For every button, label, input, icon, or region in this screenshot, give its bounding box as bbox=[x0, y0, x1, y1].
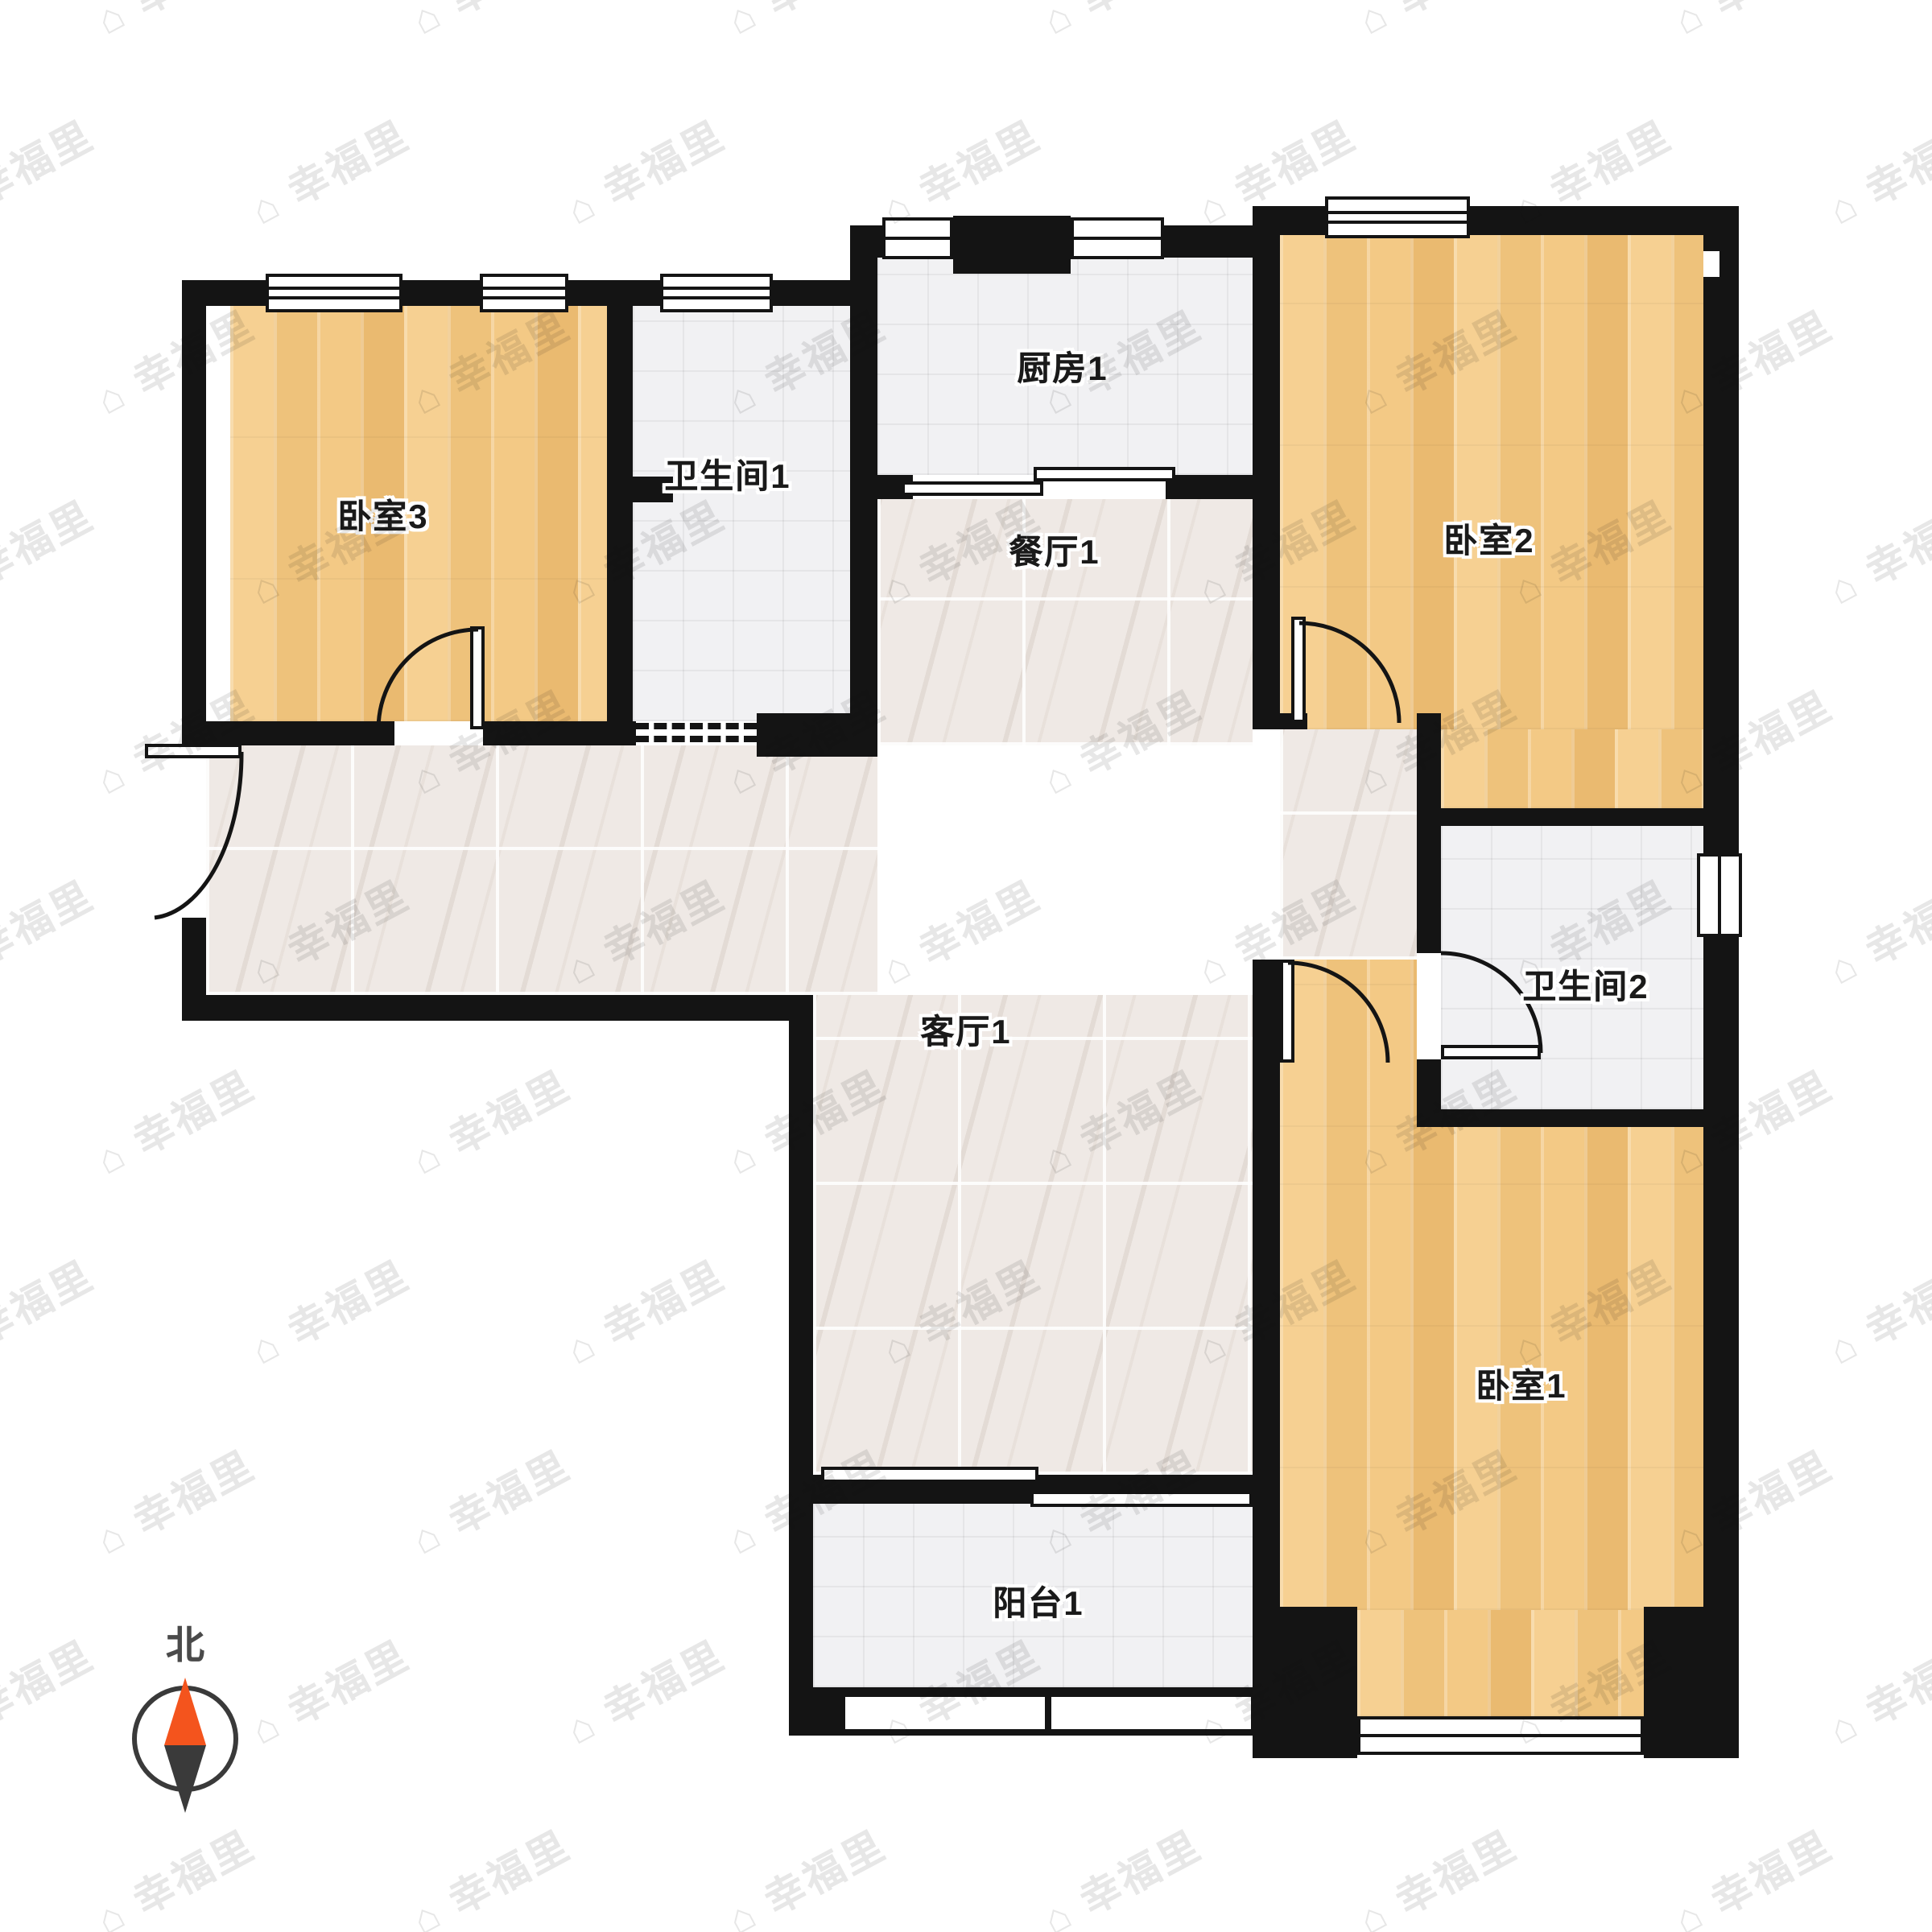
window bbox=[1071, 217, 1164, 259]
watermark-item: ⌂ 幸福里 bbox=[85, 1435, 265, 1567]
watermark-item: ⌂ 幸福里 bbox=[716, 0, 896, 47]
wall-segment bbox=[483, 721, 636, 745]
watermark-item: ⌂ 幸福里 bbox=[0, 865, 103, 997]
bedroom1-floor bbox=[1280, 960, 1417, 1127]
bedroom1-label: 卧室1 bbox=[1476, 1360, 1567, 1409]
wall-segment bbox=[206, 280, 266, 306]
watermark-item: ⌂ 幸福里 bbox=[716, 1814, 896, 1932]
kitchen-sliding-door bbox=[1034, 467, 1175, 481]
bedroom2-floor bbox=[1441, 729, 1703, 808]
window bbox=[1048, 1694, 1254, 1732]
wall-notch bbox=[1703, 251, 1719, 277]
watermark-item: ⌂ 幸福里 bbox=[1032, 1814, 1212, 1932]
watermark-item: ⌂ 幸福里 bbox=[240, 105, 419, 237]
watermark-item: ⌂ 幸福里 bbox=[0, 1245, 103, 1377]
watermark-item: ⌂ 幸福里 bbox=[85, 1814, 265, 1932]
compass-south-needle-icon bbox=[164, 1745, 206, 1813]
wall-segment bbox=[1417, 1059, 1441, 1109]
watermark-item: ⌂ 幸福里 bbox=[0, 105, 103, 237]
bedroom1-floor bbox=[1357, 1610, 1644, 1716]
compass-north-label: 北 bbox=[113, 1613, 258, 1670]
watermark-item: ⌂ 幸福里 bbox=[1818, 485, 1932, 617]
wall-segment bbox=[1253, 206, 1280, 729]
watermark-item: ⌂ 幸福里 bbox=[555, 1624, 735, 1757]
bathroom2-door-leaf bbox=[1441, 1045, 1541, 1059]
hallway-floor bbox=[1280, 729, 1417, 960]
watermark-item: ⌂ 幸福里 bbox=[1348, 0, 1527, 47]
wall-segment bbox=[206, 721, 394, 745]
watermark-item: ⌂ 幸福里 bbox=[240, 1245, 419, 1377]
compass-ring-icon bbox=[132, 1686, 238, 1792]
bedroom3-label: 卧室3 bbox=[337, 491, 428, 539]
dining-label: 餐厅1 bbox=[1009, 526, 1100, 575]
floor-plan-page: 卧室3 卫生间1 厨房1 餐厅1 卧室2 客厅1 卫生间2 卧室1 阳台1 北 … bbox=[0, 0, 1932, 1932]
wall-segment bbox=[789, 995, 813, 1736]
kitchen-sliding-door bbox=[902, 481, 1043, 496]
bathroom2-label: 卫生间2 bbox=[1522, 961, 1649, 1009]
wall-segment bbox=[1703, 1127, 1739, 1626]
wall-segment bbox=[850, 225, 882, 258]
watermark-item: ⌂ 幸福里 bbox=[871, 865, 1051, 997]
watermark-item: ⌂ 幸福里 bbox=[1032, 0, 1212, 47]
bedroom2-door-leaf bbox=[1291, 617, 1306, 723]
kitchen-label: 厨房1 bbox=[1017, 343, 1108, 391]
balcony-sliding-door bbox=[821, 1467, 1038, 1483]
window bbox=[480, 274, 568, 312]
watermark-item: ⌂ 幸福里 bbox=[401, 0, 580, 47]
bedroom3-door-leaf bbox=[470, 626, 485, 729]
wall-segment bbox=[607, 280, 633, 745]
wall-segment bbox=[1468, 206, 1739, 235]
watermark-item: ⌂ 幸福里 bbox=[1818, 105, 1932, 237]
window bbox=[1325, 196, 1470, 238]
watermark-item: ⌂ 幸福里 bbox=[0, 485, 103, 617]
watermark-item: ⌂ 幸福里 bbox=[401, 1435, 580, 1567]
watermark-item: ⌂ 幸福里 bbox=[0, 1624, 103, 1757]
living-label: 客厅1 bbox=[920, 1006, 1011, 1055]
wall-segment bbox=[1417, 713, 1441, 826]
watermark-item: ⌂ 幸福里 bbox=[555, 105, 735, 237]
bathroom1-open-threshold bbox=[636, 723, 757, 742]
balcony-sliding-door bbox=[1030, 1491, 1253, 1507]
wall-segment bbox=[1703, 206, 1739, 826]
wall-segment bbox=[182, 995, 813, 1021]
floor-plan: 卧室3 卫生间1 厨房1 餐厅1 卧室2 客厅1 卫生间2 卧室1 阳台1 北 … bbox=[0, 0, 1932, 1932]
watermark-item: ⌂ 幸福里 bbox=[1818, 865, 1932, 997]
watermark-item: ⌂ 幸福里 bbox=[1663, 0, 1843, 47]
watermark-item: ⌂ 幸福里 bbox=[1663, 1814, 1843, 1932]
compass-north-needle-icon bbox=[164, 1678, 206, 1745]
wall-segment bbox=[1644, 1607, 1739, 1758]
wall-segment bbox=[1441, 808, 1739, 826]
wall-segment bbox=[1417, 826, 1441, 953]
window bbox=[266, 274, 402, 312]
entry-door-leaf bbox=[145, 744, 242, 758]
watermark-item: ⌂ 幸福里 bbox=[401, 1814, 580, 1932]
window bbox=[882, 217, 953, 259]
wall-segment bbox=[773, 280, 850, 306]
wall-segment bbox=[182, 280, 206, 752]
bathroom1-label: 卫生间1 bbox=[664, 451, 791, 499]
watermark-item: ⌂ 幸福里 bbox=[240, 1624, 419, 1757]
watermark-item: ⌂ 幸福里 bbox=[1818, 1624, 1932, 1757]
living-floor bbox=[813, 995, 1253, 1475]
window bbox=[660, 274, 773, 312]
watermark-item: ⌂ 幸福里 bbox=[85, 0, 265, 47]
window bbox=[1357, 1716, 1644, 1755]
entry-hall-floor bbox=[206, 745, 877, 995]
window bbox=[842, 1694, 1048, 1732]
watermark-item: ⌂ 幸福里 bbox=[1348, 1814, 1527, 1932]
watermark-item: ⌂ 幸福里 bbox=[555, 1245, 735, 1377]
wall-segment bbox=[1280, 206, 1328, 235]
wall-segment bbox=[1417, 1109, 1739, 1127]
window bbox=[1697, 853, 1742, 937]
balcony-label: 阳台1 bbox=[993, 1578, 1084, 1626]
bedroom1-door-leaf bbox=[1280, 960, 1294, 1063]
bedroom2-label: 卧室2 bbox=[1443, 515, 1534, 563]
compass: 北 bbox=[113, 1613, 258, 1792]
wall-segment bbox=[953, 216, 1071, 274]
watermark-item: ⌂ 幸福里 bbox=[85, 1055, 265, 1187]
wall-segment bbox=[402, 280, 480, 306]
bedroom2-floor bbox=[1280, 235, 1703, 729]
wall-segment bbox=[1166, 475, 1253, 499]
watermark-item: ⌂ 幸福里 bbox=[401, 1055, 580, 1187]
bathroom1-floor bbox=[633, 306, 850, 721]
wall-segment bbox=[850, 225, 877, 721]
watermark-item: ⌂ 幸福里 bbox=[1818, 1245, 1932, 1377]
